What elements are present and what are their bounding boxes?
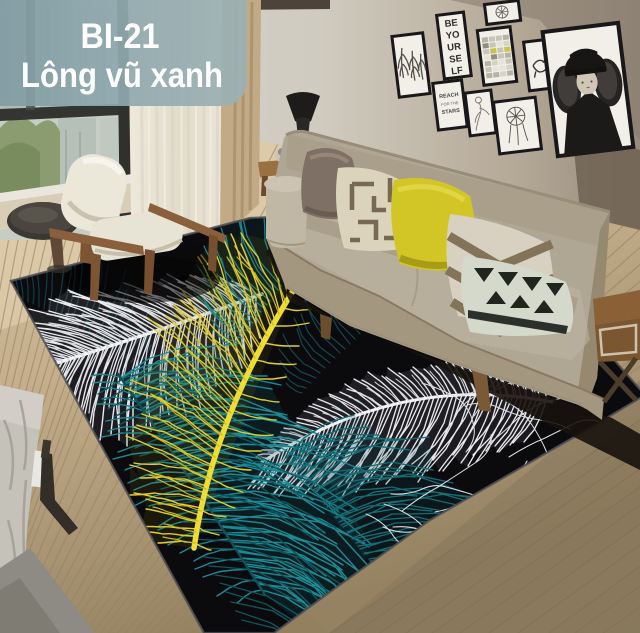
svg-text:YO: YO [445,29,460,42]
svg-text:UR: UR [447,41,462,54]
svg-text:Lông vũ xanh: Lông vũ xanh [21,56,223,95]
svg-text:SE: SE [449,53,463,65]
svg-text:LF: LF [451,65,464,77]
svg-text:BE: BE [444,17,458,30]
svg-text:BI-21: BI-21 [81,17,160,56]
